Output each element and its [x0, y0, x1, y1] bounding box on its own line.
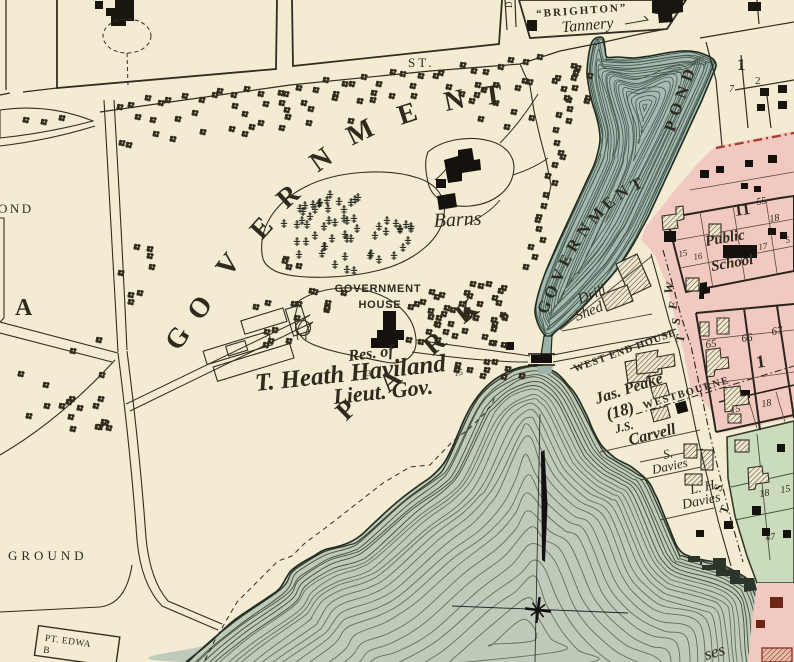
svg-text:67: 67: [771, 324, 784, 337]
svg-text:Barns: Barns: [433, 208, 482, 232]
svg-text:OND: OND: [0, 201, 34, 216]
svg-text:55: 55: [756, 195, 768, 208]
svg-text:18: 18: [759, 487, 771, 500]
svg-text:HOUSE: HOUSE: [358, 299, 401, 311]
svg-text:15: 15: [780, 483, 792, 496]
svg-text:A: A: [15, 295, 33, 321]
svg-text:GROUND: GROUND: [8, 548, 88, 563]
svg-text:18: 18: [769, 212, 781, 225]
svg-text:ST.: ST.: [408, 55, 434, 70]
svg-text:2: 2: [755, 75, 761, 87]
svg-text:D: D: [504, 1, 514, 8]
svg-text:GOVERNMENT: GOVERNMENT: [335, 283, 422, 295]
svg-text:15: 15: [454, 367, 464, 378]
svg-text:43: 43: [362, 368, 372, 379]
svg-text:18: 18: [761, 397, 773, 410]
svg-text:1: 1: [737, 55, 746, 74]
svg-text:11: 11: [733, 199, 752, 220]
svg-text:66: 66: [741, 331, 754, 344]
